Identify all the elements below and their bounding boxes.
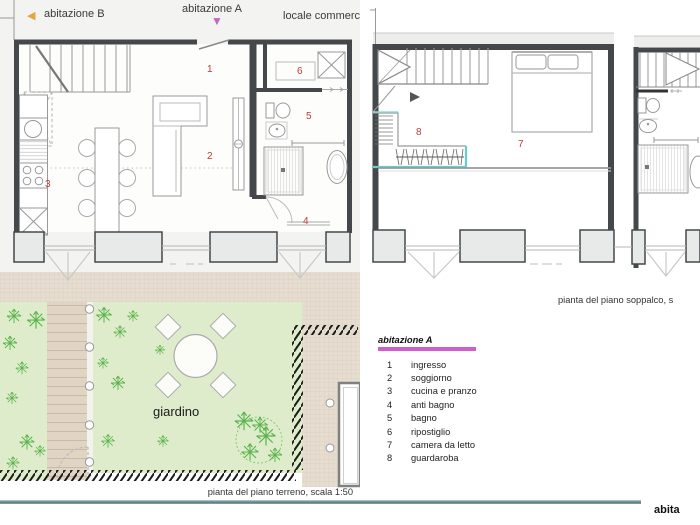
room-number-2: 2 <box>207 151 213 162</box>
legend-label: soggiorno <box>411 373 452 383</box>
toilet-tank <box>266 103 274 118</box>
legend-num: 8 <box>387 453 401 463</box>
bidet <box>269 124 285 137</box>
legend-num: 5 <box>387 413 401 423</box>
legend-num: 4 <box>387 400 401 410</box>
legend-rows: 1ingresso 2soggiorno 3cucina e pranzo 4a… <box>378 358 538 465</box>
room-number-3: 3 <box>45 179 51 190</box>
legend-label: cucina e pranzo <box>411 386 477 396</box>
legend-label: ingresso <box>411 360 446 370</box>
room-number-4: 4 <box>303 216 309 227</box>
legend-label: camera da letto <box>411 440 475 450</box>
legend-row: 5bagno <box>378 412 538 425</box>
legend-row: 4anti bagno <box>378 398 538 411</box>
legend: abitazione A 1ingresso 2soggiorno 3cucin… <box>378 335 538 465</box>
locale-commerciale-label: locale commerc <box>283 10 360 22</box>
legend-accent-bar <box>378 347 476 351</box>
legend-row: 1ingresso <box>378 358 538 371</box>
legend-title: abitazione A <box>378 335 538 345</box>
legend-num: 7 <box>387 440 401 450</box>
arrow-left-icon: ◀ <box>27 9 35 22</box>
legend-row: 7camera da letto <box>378 438 538 451</box>
legend-row: 3cucina e pranzo <box>378 385 538 398</box>
legend-row: 6ripostiglio <box>378 425 538 438</box>
divider-rule <box>0 500 641 504</box>
kitchen-counter <box>20 95 48 235</box>
legend-num: 3 <box>387 386 401 396</box>
watermark-text: abita <box>654 504 680 516</box>
hatch-border-top-right <box>292 325 358 335</box>
hatch-border-bottom <box>0 470 296 481</box>
room-number-5: 5 <box>306 111 312 122</box>
mezzanine-drawing <box>370 0 700 310</box>
radiator <box>233 98 244 190</box>
room-number-8: 8 <box>416 127 422 138</box>
legend-label: anti bagno <box>411 400 454 410</box>
garden-round-table <box>174 335 217 378</box>
double-bed <box>512 52 592 132</box>
room-number-7: 7 <box>518 139 524 150</box>
legend-label: bagno <box>411 413 437 423</box>
kitchen-sink <box>25 121 42 138</box>
abitazione-b-label: abitazione B <box>44 8 105 20</box>
legend-num: 2 <box>387 373 401 383</box>
legend-label: ripostiglio <box>411 427 450 437</box>
room-number-6: 6 <box>297 66 303 77</box>
hatch-border-right <box>292 334 303 470</box>
floor-plan-sheet: ◀ abitazione B abitazione A ▼ locale com… <box>0 0 700 525</box>
legend-row: 2soggiorno <box>378 371 538 384</box>
legend-label: guardaroba <box>411 453 459 463</box>
legend-num: 1 <box>387 360 401 370</box>
mezzanine-caption: pianta del piano soppalco, s <box>558 295 673 305</box>
room-number-1: 1 <box>207 64 213 75</box>
legend-num: 6 <box>387 427 401 437</box>
legend-row: 8guardaroba <box>378 452 538 465</box>
garden-label: giardino <box>153 404 199 419</box>
arrow-down-icon: ▼ <box>211 14 223 28</box>
ground-floor-drawing <box>0 0 360 500</box>
ground-floor-caption: pianta del piano terreno, scala 1:50 <box>0 487 353 497</box>
toilet-bowl <box>276 103 290 118</box>
